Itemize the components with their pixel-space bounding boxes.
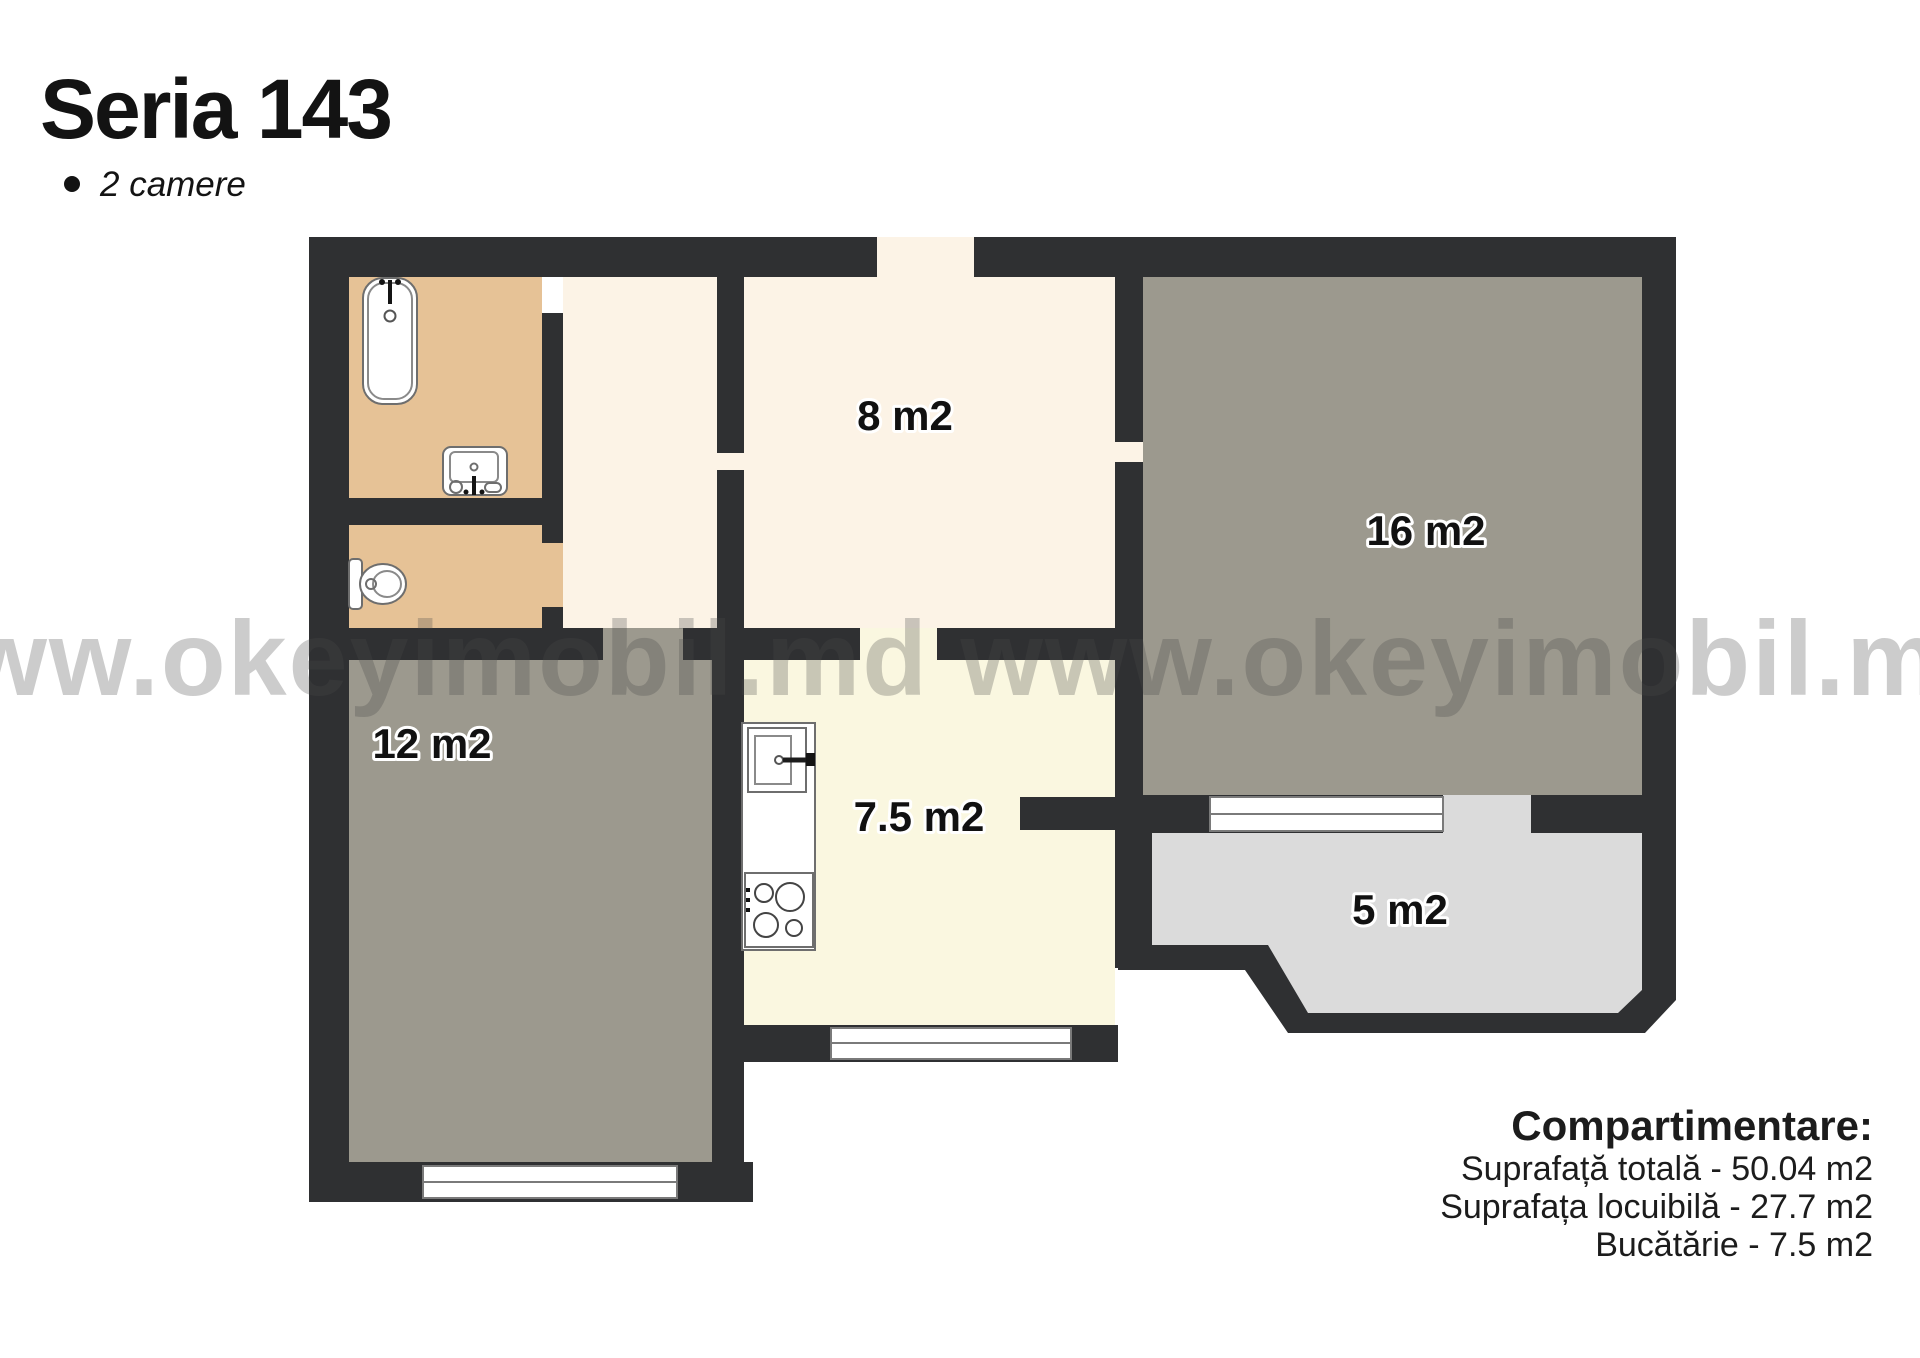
bathroom-door-opening xyxy=(542,277,563,313)
wall-segment xyxy=(1020,797,1115,830)
page-title: Seria 143 xyxy=(40,62,391,156)
wall-segment xyxy=(1115,277,1143,442)
hallway-floor xyxy=(563,277,1115,628)
label-bedroom: 12 m2 xyxy=(372,720,491,767)
wall-segment xyxy=(542,313,563,498)
wall-segment xyxy=(542,498,563,543)
entrance-opening xyxy=(877,237,974,277)
label-kitchen: 7.5 m2 xyxy=(854,793,985,840)
stove-icon xyxy=(745,873,813,947)
summary-line: Suprafața locuibilă - 27.7 m2 xyxy=(1440,1188,1873,1226)
wall-segment xyxy=(717,277,744,453)
bathtub-icon xyxy=(363,278,417,404)
kitchen-sink-icon xyxy=(748,728,815,792)
wall-segment xyxy=(349,498,542,525)
hallway-floors xyxy=(563,237,1143,628)
wall-segment xyxy=(309,237,877,277)
bullet-icon xyxy=(64,176,80,192)
label-living: 16 m2 xyxy=(1366,507,1485,554)
summary-line: Bucătărie - 7.5 m2 xyxy=(1595,1226,1873,1264)
summary-title: Compartimentare: xyxy=(1511,1102,1873,1149)
page-subtitle: 2 camere xyxy=(99,165,246,204)
summary-block: Compartimentare: Suprafață totală - 50.0… xyxy=(1440,1102,1873,1264)
label-hallway: 8 m2 xyxy=(857,392,953,439)
label-balcony: 5 m2 xyxy=(1352,886,1448,933)
summary-line: Suprafață totală - 50.04 m2 xyxy=(1461,1150,1873,1188)
balcony-door-opening xyxy=(1443,795,1531,833)
hall-living-door-opening xyxy=(1115,442,1143,462)
watermark: www.okeyimobil.md www.okeyimobil.md xyxy=(0,600,1920,718)
header: Seria 143 2 camere xyxy=(40,62,391,204)
wc-door-opening xyxy=(542,543,563,607)
kitchen-counter-icon xyxy=(742,723,815,950)
floor-plan-canvas: 8 m2 16 m2 12 m2 7.5 m2 5 m2 Seria 143 2… xyxy=(0,0,1920,1358)
wall-segment xyxy=(974,237,1676,277)
bathroom-sink-icon xyxy=(443,447,507,495)
wall-segment xyxy=(309,237,349,1202)
